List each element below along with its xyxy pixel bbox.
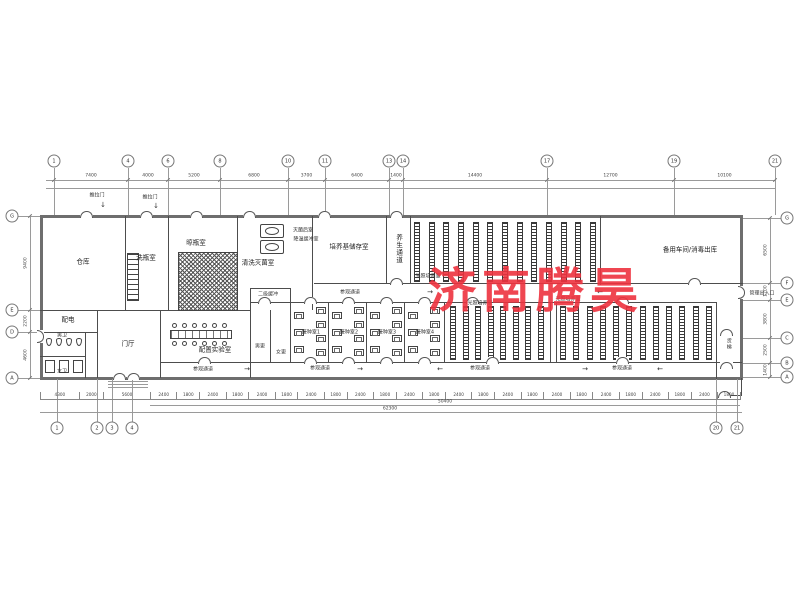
dimension-label: 1800 [226, 392, 249, 399]
wall-v5 [386, 216, 387, 283]
dimension-label: 2400 [543, 392, 569, 399]
room-label-warehouse: 仓库 [77, 258, 90, 265]
dimension-label: 2400 [347, 392, 373, 399]
grid-bubble: F [781, 277, 794, 290]
door-icon [342, 357, 355, 364]
urinal-icon [46, 338, 52, 346]
dimension-label: 3800 [764, 313, 769, 324]
grid-leader [737, 379, 738, 422]
dimension-label: 14400 [468, 174, 482, 179]
grid-bubble: 1 [51, 422, 64, 435]
corridor-label-curing: 养生通道 [394, 234, 401, 264]
room-label-freight-lift: 货梯 [725, 338, 731, 350]
wall-v12 [290, 288, 291, 362]
dimension-label: 1800 [717, 392, 740, 399]
wall-vestibule-right [741, 378, 742, 396]
grid-leader [716, 379, 717, 422]
dimension-label: 2400 [642, 392, 668, 399]
grid-bubble: E [6, 304, 19, 317]
dimension-label: 2500 [764, 344, 769, 355]
callout-sliding-door: 推拉门 [89, 193, 104, 199]
dimension-label: 1400 [764, 364, 769, 375]
dimension-label: 10100 [717, 174, 731, 179]
grid-bubble: 2 [91, 422, 104, 435]
clean-bench-icon [354, 335, 364, 342]
urinal-icon [66, 338, 72, 346]
door-icon [390, 211, 403, 218]
dimension-label: 2200 [24, 315, 29, 326]
dimension-label: 2400 [199, 392, 225, 399]
dimension-label: 6500 [764, 244, 769, 255]
arrow-right-icon: → [582, 365, 588, 373]
urinal-icon [76, 338, 82, 346]
dimension-label: 2000 [79, 392, 103, 399]
wall-v2 [168, 216, 169, 310]
grid-bubble: A [6, 372, 19, 385]
clean-bench-icon [370, 312, 380, 319]
grid-bubble: A [781, 371, 794, 384]
corridor-label-visit: 参观通道 [612, 366, 632, 372]
arrow-left-icon: ← [437, 365, 443, 373]
dimension-label: 1800 [471, 392, 494, 399]
wall-peidian-bottom [40, 332, 97, 333]
door-icon [342, 297, 355, 304]
arrow-right-icon: → [244, 365, 250, 373]
dim-line-subtotal [150, 405, 740, 406]
stool-icon [172, 323, 177, 328]
door-icon [738, 286, 745, 299]
dim-line-left [30, 216, 31, 378]
dimension-label: 1800 [668, 392, 691, 399]
grid-leader [288, 168, 289, 215]
stool-row [172, 323, 227, 328]
dimension-label: 4600 [24, 349, 29, 360]
watermark: 济南腾昊 [428, 251, 644, 321]
arrow-left-icon: ← [657, 365, 663, 373]
wall-v10 [160, 310, 161, 378]
room-label-buffer2: 二级缓冲 [258, 292, 278, 298]
wall-v13 [270, 310, 271, 362]
stool-icon [202, 323, 207, 328]
dimension-label: 7400 [85, 174, 96, 179]
door-icon [380, 297, 393, 304]
grid-leader [128, 168, 129, 215]
stool-icon [222, 323, 227, 328]
room-label-wash-sterilize: 清洗灭菌室 [242, 259, 275, 266]
grid-leader [743, 377, 781, 378]
grid-bubble: G [6, 210, 19, 223]
grid-leader [57, 379, 58, 422]
dimension-label: 4300 [40, 392, 79, 399]
dimension-label: 6400 [351, 174, 362, 179]
stool-icon [172, 341, 177, 346]
door-icon [37, 330, 44, 343]
door-icon [304, 297, 317, 304]
grid-bubble: 10 [282, 155, 295, 168]
dimension-label: 2400 [445, 392, 471, 399]
room-label-bottle-drying: 晾瓶室 [186, 239, 206, 246]
wall-bottom [40, 377, 743, 380]
dim-line-top [46, 180, 775, 181]
room-label-inoculation-4: 接种室4 [416, 330, 434, 336]
dimension-label: 5200 [188, 174, 199, 179]
dimension-label: 2400 [150, 392, 176, 399]
grow-rack-icon [693, 306, 699, 360]
callout-sliding-door: 推拉门 [142, 195, 157, 201]
dimension-label: 1800 [373, 392, 396, 399]
grid-leader [54, 168, 55, 215]
clean-bench-icon [354, 321, 364, 328]
grid-bubble: 17 [541, 155, 554, 168]
stool-icon [212, 323, 217, 328]
dimension-label: 50400 [438, 400, 452, 405]
clean-bench-icon [370, 346, 380, 353]
room-label-prep-lab: 配置实验室 [199, 346, 232, 353]
clean-bench-icon [316, 349, 326, 356]
entrance-step [108, 381, 148, 382]
grid-leader [743, 363, 781, 364]
grid-leader [743, 300, 781, 301]
clean-bench-icon [430, 335, 440, 342]
grid-bubble: 8 [214, 155, 227, 168]
grid-bubble: 11 [319, 155, 332, 168]
door-icon [486, 357, 499, 364]
clean-bench-icon [332, 312, 342, 319]
grid-bubble: 20 [710, 422, 723, 435]
grow-rack-icon [666, 306, 672, 360]
grid-bubble: E [781, 294, 794, 307]
corridor-label-visit: 参观通道 [193, 367, 213, 373]
door-icon [190, 211, 203, 218]
autoclave-icon [260, 240, 284, 254]
dimension-label: 2400 [297, 392, 323, 399]
urinal-icon [56, 338, 62, 346]
wc-stall-icon [73, 360, 83, 373]
wall-v9 [97, 310, 98, 378]
dimension-label: 2400 [396, 392, 422, 399]
grid-bubble: 6 [162, 155, 175, 168]
arrow-right-icon: → [357, 365, 363, 373]
dim-line-top2 [46, 188, 775, 189]
grid-bubble: 1 [48, 155, 61, 168]
grid-bubble: D [6, 326, 19, 339]
dimension-label: 1800 [422, 392, 445, 399]
grid-leader [132, 379, 133, 422]
dimension-label: 1800 [619, 392, 642, 399]
room-label-mens-change: 男更 [255, 344, 265, 350]
clean-bench-icon [392, 349, 402, 356]
corridor-label-visit: 参观通道 [340, 290, 360, 296]
grid-leader [743, 218, 781, 219]
dimension-label: 2400 [592, 392, 618, 399]
wall-wc-divider [40, 356, 85, 357]
wall-v14 [328, 302, 329, 362]
dimension-label: 1800 [324, 392, 347, 399]
entrance-door-icon [113, 373, 126, 380]
callout-post-sterilize: 灭菌后室 [293, 228, 313, 234]
wall-visit-corridor [160, 362, 742, 363]
room-label-lobby: 门厅 [122, 340, 135, 347]
door-icon [243, 211, 256, 218]
door-icon [380, 357, 393, 364]
grid-bubble: 14 [397, 155, 410, 168]
autoclave-icon [260, 224, 284, 238]
grid-leader [325, 168, 326, 215]
grid-leader [775, 168, 776, 215]
door-icon [80, 211, 93, 218]
dimension-label: 1800 [176, 392, 199, 399]
lab-bench [170, 330, 232, 339]
door-icon [720, 362, 733, 369]
dim-line-total [40, 412, 742, 413]
callout-cooling-buffer: 降温缓冲室 [293, 237, 318, 243]
door-icon [418, 357, 431, 364]
grid-bubble: 13 [383, 155, 396, 168]
dimension-label: 2400 [691, 392, 717, 399]
clean-bench-icon [392, 307, 402, 314]
room-label-power: 配电 [62, 316, 75, 323]
clean-bench-icon [294, 312, 304, 319]
clean-bench-icon [354, 349, 364, 356]
door-icon [198, 357, 211, 364]
wall-v1 [125, 216, 126, 310]
room-label-spare-workshop: 备用车间/消毒出库 [663, 246, 717, 253]
room-label-womens-wc: 女卫 [57, 369, 67, 375]
dimension-label: 1800 [275, 392, 298, 399]
door-icon [616, 357, 629, 364]
dimension-label: 4000 [142, 174, 153, 179]
grid-leader [743, 283, 781, 284]
room-label-womens-change: 女更 [276, 350, 286, 356]
door-icon [318, 211, 331, 218]
dimension-label: 5600 [103, 392, 150, 399]
corridor-label-visit: 参观通道 [470, 366, 490, 372]
grid-bubble: C [781, 332, 794, 345]
dimension-label: 62300 [383, 407, 397, 412]
stool-icon [182, 341, 187, 346]
wall-v11 [250, 288, 251, 378]
door-icon [720, 329, 733, 336]
grid-bubble: 4 [122, 155, 135, 168]
wall-buffer-top [250, 288, 290, 289]
grid-bubble: B [781, 357, 794, 370]
dimension-label: 3700 [301, 174, 312, 179]
clean-bench-icon [408, 346, 418, 353]
room-label-medium-storage: 培养基储存室 [330, 243, 369, 250]
grow-rack-icon [706, 306, 712, 360]
clean-bench-icon [392, 321, 402, 328]
clean-bench-icon [354, 307, 364, 314]
grid-leader [743, 338, 781, 339]
door-icon [390, 278, 403, 285]
dimension-label: 6800 [248, 174, 259, 179]
wall-v15 [366, 302, 367, 362]
grid-leader [168, 168, 169, 215]
clean-bench-icon [430, 349, 440, 356]
grid-leader [220, 168, 221, 215]
door-icon [258, 297, 271, 304]
grow-rack-icon [679, 306, 685, 360]
door-icon [140, 211, 153, 218]
grow-rack-icon [653, 306, 659, 360]
door-icon [688, 278, 701, 285]
wc-stall-icon [45, 360, 55, 373]
arrow-down-icon: ↓ [153, 202, 159, 210]
grid-bubble: G [781, 212, 794, 225]
dim-chain-left: 430020005600 [40, 392, 151, 400]
wall-v6 [410, 216, 411, 283]
dimension-label: 1800 [570, 392, 593, 399]
grid-bubble: 3 [106, 422, 119, 435]
room-label-inoculation-1: 接种室1 [302, 330, 320, 336]
dimension-label: 1800 [521, 392, 544, 399]
entrance-step [108, 384, 148, 385]
grid-leader [403, 168, 404, 215]
clean-bench-icon [332, 346, 342, 353]
room-label-inoculation-2: 接种室2 [340, 330, 358, 336]
entrance-step [108, 387, 148, 388]
arrow-down-icon: ↓ [100, 201, 106, 209]
dimension-label: 2400 [494, 392, 520, 399]
corridor-label-visit: 参观通道 [310, 366, 330, 372]
grid-leader [674, 168, 675, 215]
dimension-label: 2400 [248, 392, 274, 399]
grid-leader [112, 379, 113, 422]
room-label-bottle-washing: 洗瓶室 [136, 254, 156, 261]
callout-mgmt-entrance: 管理出入口 [749, 291, 774, 297]
stool-icon [192, 341, 197, 346]
grid-leader [97, 379, 98, 422]
grid-bubble: 21 [731, 422, 744, 435]
grid-leader [547, 168, 548, 215]
clean-bench-icon [316, 321, 326, 328]
floor-plan-sheet: 仓库 洗瓶室 晾瓶室 清洗灭菌室 培养基储存室 养生通道 光照培养室 备用车间/… [0, 0, 800, 600]
door-icon [304, 357, 317, 364]
clean-bench-icon [430, 321, 440, 328]
clean-bench-icon [392, 335, 402, 342]
grid-bubble: 21 [769, 155, 782, 168]
dimension-label: 12700 [603, 174, 617, 179]
wall-v8 [85, 332, 86, 378]
stool-icon [182, 323, 187, 328]
clean-bench-icon [316, 335, 326, 342]
clean-bench-icon [316, 307, 326, 314]
room-label-inoculation-3: 接种室3 [378, 330, 396, 336]
clean-bench-icon [408, 312, 418, 319]
stool-icon [192, 323, 197, 328]
wall-v16 [404, 302, 405, 362]
drying-floor-hatch [178, 252, 238, 311]
dimension-label: 9400 [24, 257, 29, 268]
dimension-label: 1400 [390, 174, 401, 179]
clean-bench-icon [294, 346, 304, 353]
grid-bubble: 19 [668, 155, 681, 168]
urinal-row [46, 338, 82, 346]
entrance-door-icon [127, 373, 140, 380]
room-label-mens-wc: 男卫 [57, 333, 67, 339]
grid-bubble: 4 [126, 422, 139, 435]
